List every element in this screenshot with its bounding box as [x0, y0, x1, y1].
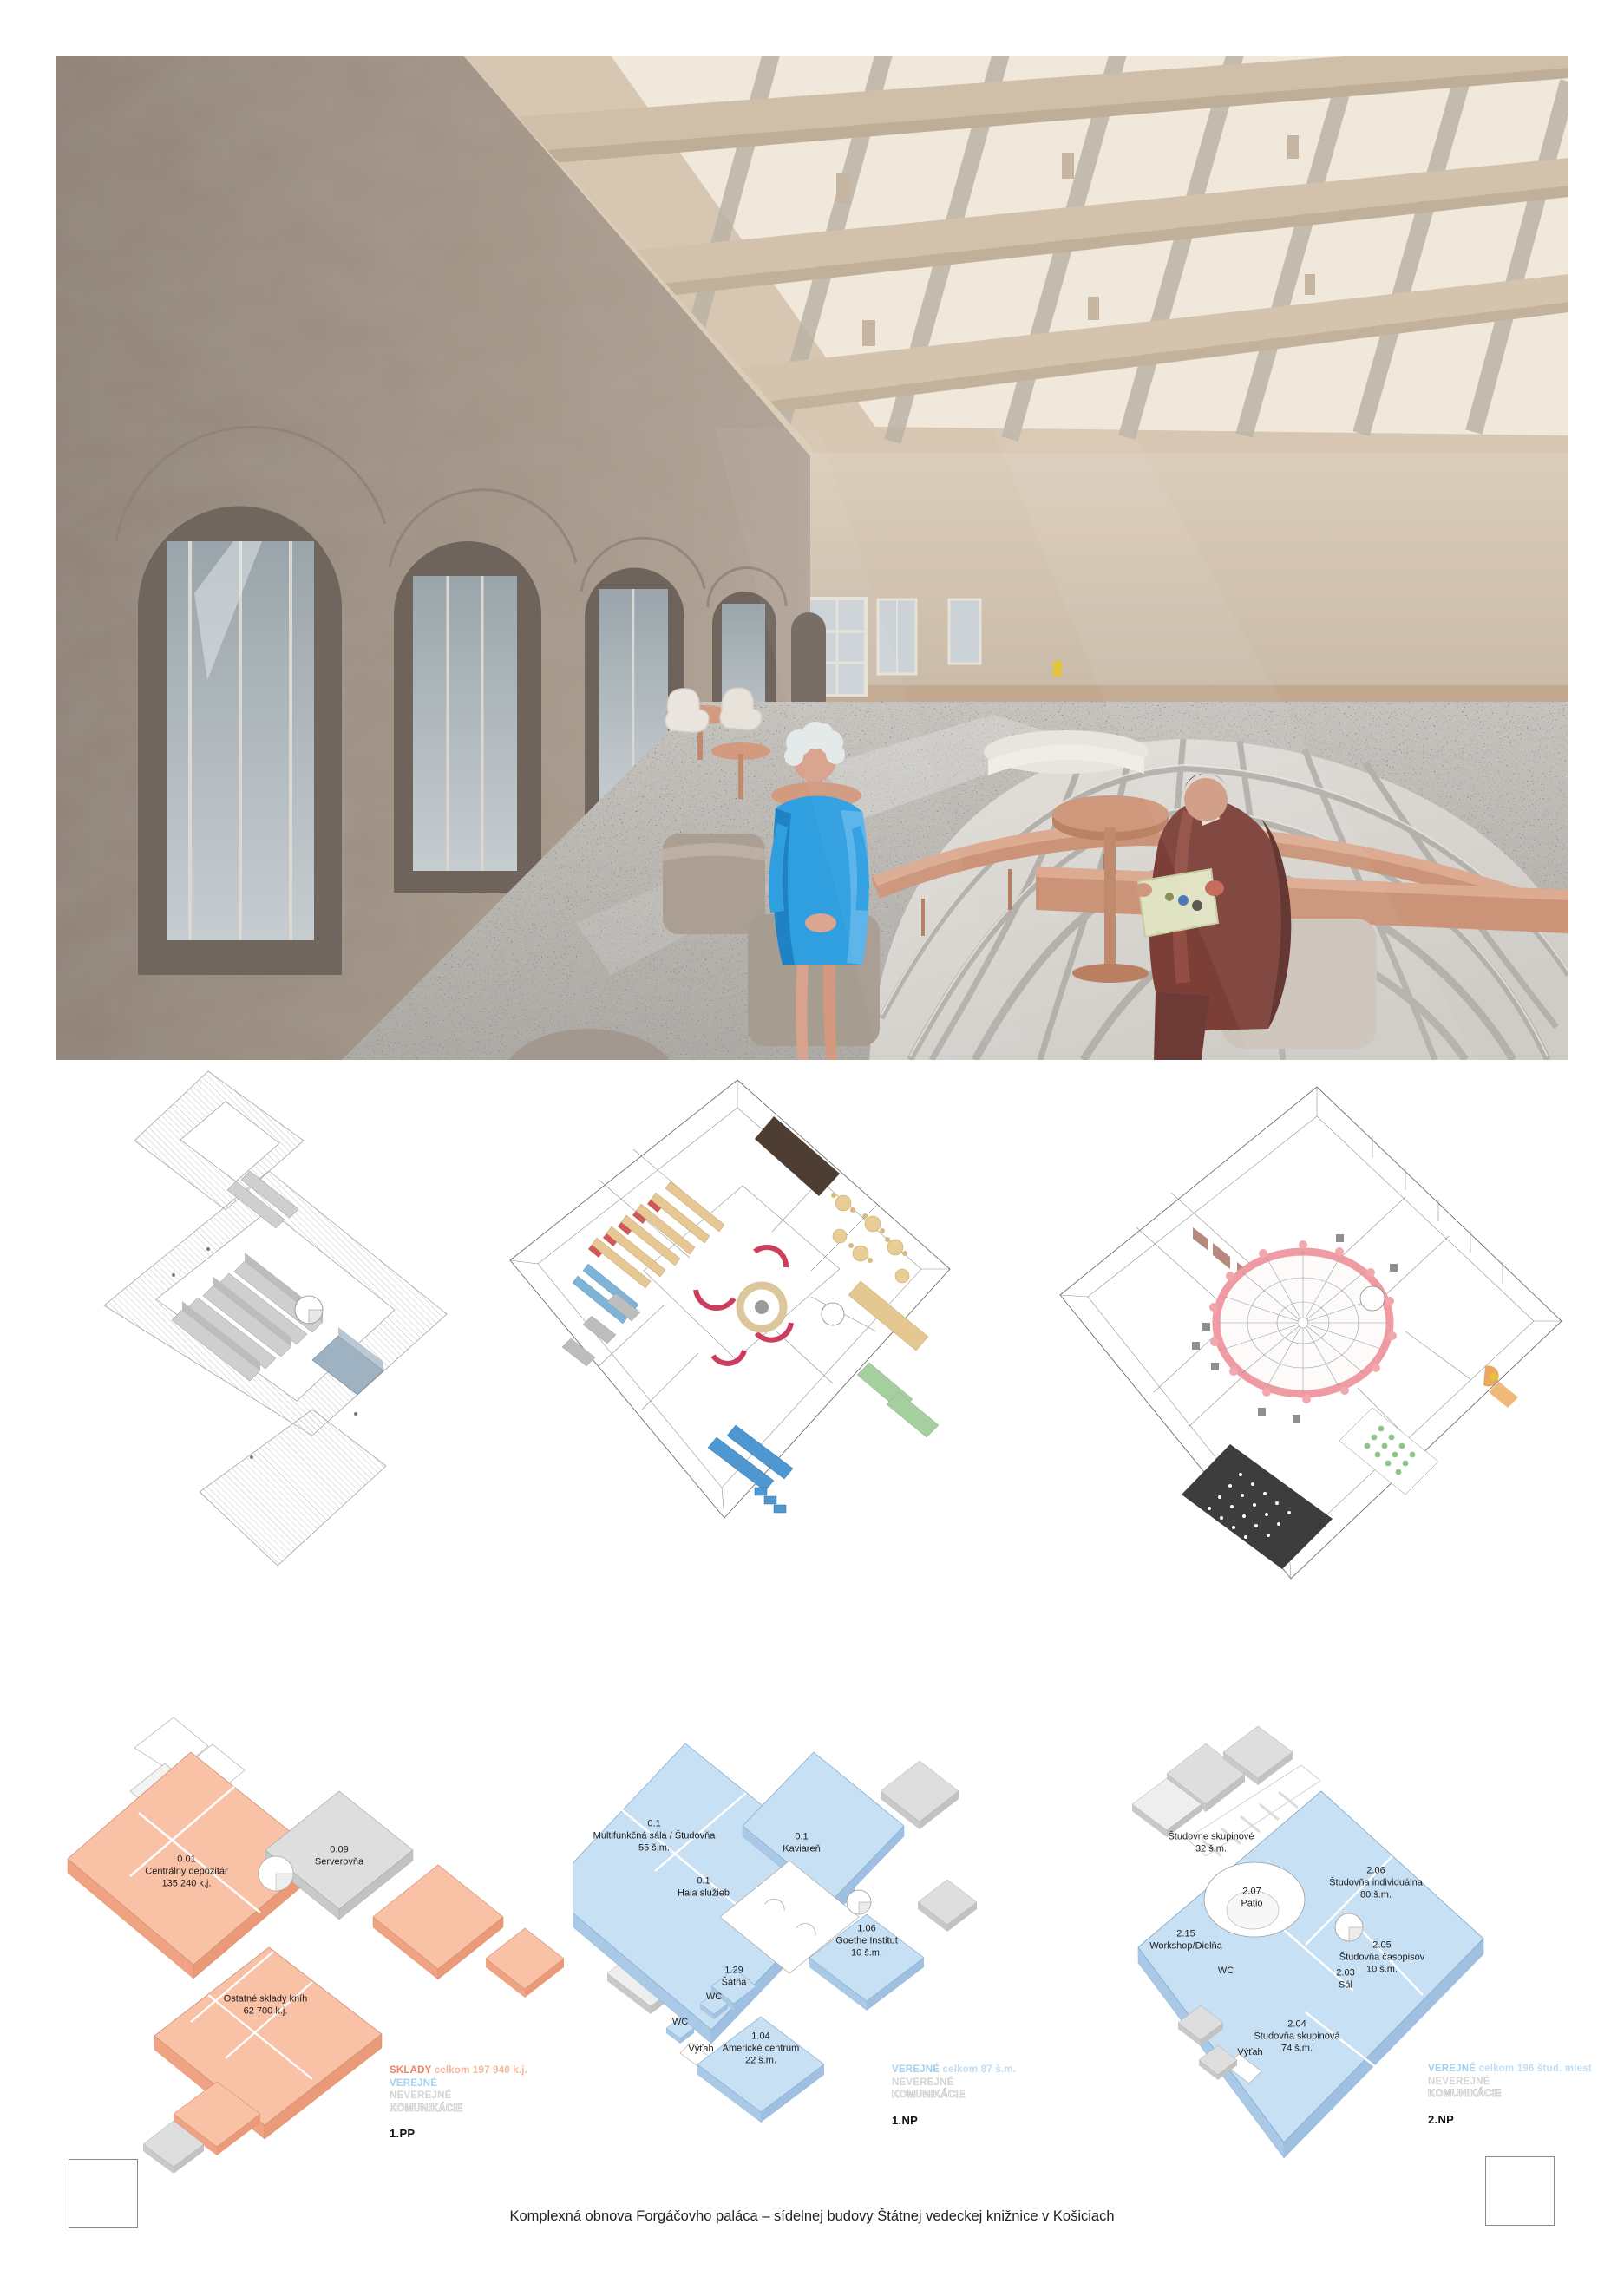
red-lounge-sofas: [696, 1247, 791, 1364]
room-label: 2.04 Študovňa skupinová 74 š.m.: [1254, 2018, 1339, 2054]
axonometric-second-floor-drawing: [998, 1037, 1605, 1605]
room-code: 0.1: [783, 1831, 820, 1843]
legend-1pp: SKLADY celkom 197 940 k.j. VEREJNÉ NEVER…: [390, 2065, 527, 2141]
floor-label-2np: 2.NP: [1428, 2113, 1592, 2126]
library-shelving: [573, 1181, 724, 1324]
room-name: WC: [1218, 1966, 1234, 1978]
room-name: Šatňa: [722, 1977, 747, 1989]
legend-circulation-label: KOMUNIKÁCIE: [1428, 2089, 1592, 2101]
legend-public-label: VEREJNÉ: [390, 2078, 527, 2090]
room-label: 0.1 Kaviareň: [783, 1831, 820, 1855]
room-name: Multifunkčná sála / Študovňa: [593, 1830, 716, 1842]
legend-public-label: VEREJNÉ: [1428, 2064, 1476, 2074]
room-name: Centrálny depozitár: [145, 1866, 227, 1878]
room-area: 10 š.m.: [835, 1947, 898, 1959]
cafe-round-tables: [831, 1193, 928, 1351]
spiral-stair: [822, 1303, 844, 1325]
room-name: Kaviareň: [783, 1843, 820, 1855]
room-area: 62 700 k.j.: [224, 2005, 308, 2018]
room-code: 0.1: [678, 1875, 730, 1887]
gray-desks: [562, 1293, 640, 1366]
brick-arcade: [1193, 1227, 1279, 1307]
room-code: 0.1: [593, 1818, 716, 1830]
room-code: 2.07: [1241, 1886, 1262, 1898]
room-code: 2.04: [1254, 2018, 1339, 2031]
yellow-object: [1053, 661, 1062, 677]
room-label: WC: [1218, 1966, 1234, 1978]
stair-drum: [259, 1856, 293, 1891]
room-area: 22 š.m.: [723, 2055, 800, 2067]
room-area: 80 š.m.: [1329, 1889, 1423, 1901]
room-label: 2.06 Študovňa individuálna 80 š.m.: [1329, 1865, 1423, 1900]
room-code: 2.06: [1329, 1865, 1423, 1877]
room-name: Študovňa individuálna: [1329, 1877, 1423, 1889]
room-code: 0.01: [145, 1854, 227, 1866]
hand: [1135, 883, 1152, 897]
room-name: Výťah: [1237, 2047, 1262, 2059]
room-label: Študovne skupinové 32 š.m.: [1168, 1831, 1254, 1855]
room-name: Študovňa časopisov: [1339, 1952, 1424, 1964]
presentation-board: 0.01 Centrálny depozitár 135 240 k.j. 0.…: [0, 0, 1624, 2296]
wall-lines: [510, 1080, 950, 1518]
pink-poufs: [1209, 1240, 1397, 1403]
gray-back-masses: [1132, 1726, 1293, 1837]
hands: [805, 913, 836, 932]
room-area: 32 š.m.: [1168, 1843, 1254, 1855]
legend-circulation-label: KOMUNIKÁCIE: [390, 2103, 527, 2116]
book-storage-shelves: [172, 1171, 323, 1381]
room-name: Výťah: [688, 2044, 713, 2056]
axonometric-ground-floor-drawing: [468, 1037, 989, 1574]
green-tables: [857, 1363, 939, 1437]
room-label: 2.03 Sál: [1336, 1967, 1354, 1992]
room-code: 2.15: [1149, 1928, 1222, 1940]
room-label: Výťah: [688, 2044, 713, 2056]
legend-nonpublic-label: NEVEREJNÉ: [390, 2090, 527, 2103]
interior-rendering-art: [56, 56, 1568, 1060]
server-racks: [312, 1327, 383, 1395]
room-area: 135 240 k.j.: [145, 1878, 227, 1890]
room-code: 1.04: [723, 2031, 800, 2043]
room-name: WC: [672, 2017, 688, 2029]
legend-nonpublic-label: NEVEREJNÉ: [892, 2077, 1016, 2090]
legend-1np: VEREJNÉ celkom 87 š.m. NEVEREJNÉ KOMUNIK…: [892, 2064, 1016, 2127]
legend-nonpublic-label: NEVEREJNÉ: [1428, 2077, 1592, 2089]
legend-public-total: celkom 196 štud. miest: [1479, 2064, 1592, 2074]
room-label: WC: [672, 2017, 688, 2029]
columns: [172, 1247, 357, 1459]
legend-storage-total: celkom 197 940 k.j.: [435, 2065, 527, 2076]
room-label: WC: [706, 1992, 722, 2004]
central-info-desk: [740, 1285, 783, 1329]
room-label: Výťah: [1237, 2047, 1262, 2059]
gray-cubes: [1192, 1234, 1398, 1423]
room-area: 74 š.m.: [1254, 2043, 1339, 2055]
basement-rooms: [156, 1210, 395, 1401]
room-label: 0.1 Hala služieb: [678, 1875, 730, 1900]
room-name: Serverovňa: [315, 1856, 363, 1868]
room-code: 0.09: [315, 1844, 363, 1856]
room-label: 0.09 Serverovňa: [315, 1844, 363, 1868]
room-name: Hala služieb: [678, 1887, 730, 1900]
room-label: 1.04 Americké centrum 22 š.m.: [723, 2031, 800, 2066]
storage-arm-mass: [373, 1865, 564, 1998]
room-name: Ostatné sklady kníh: [224, 1993, 308, 2005]
legend-storage-label: SKLADY: [390, 2065, 431, 2076]
room-code: 1.29: [722, 1965, 747, 1977]
blue-stacks: [708, 1425, 793, 1513]
room-name: Študovňa skupinová: [1254, 2031, 1339, 2043]
room-name: Americké centrum: [723, 2043, 800, 2055]
room-code: 2.03: [1336, 1967, 1354, 1979]
floor-label-1pp: 1.PP: [390, 2127, 527, 2140]
room-name: Workshop/Dielňa: [1149, 1940, 1222, 1953]
room-name: Goethe Institut: [835, 1935, 898, 1947]
interior-rendering: [56, 56, 1568, 1060]
room-label: 0.1 Multifunkčná sála / Študovňa 55 š.m.: [593, 1818, 716, 1854]
room-label: 1.06 Goethe Institut 10 š.m.: [835, 1923, 898, 1959]
orange-corner-room: [1483, 1365, 1518, 1408]
plan-1pp-drawing: [52, 1687, 625, 2173]
room-name: Sál: [1336, 1979, 1354, 1992]
room-name: Študovne skupinové: [1168, 1831, 1254, 1843]
legend-public-label: VEREJNÉ: [892, 2064, 940, 2075]
room-name: WC: [706, 1992, 722, 2004]
spiral-stair: [295, 1296, 323, 1324]
dark-wood-wall: [755, 1116, 840, 1196]
green-reading-room: [1339, 1408, 1438, 1495]
legend-circulation-label: KOMUNIKÁCIE: [892, 2090, 1016, 2102]
room-label: 0.01 Centrálny depozitár 135 240 k.j.: [145, 1854, 227, 1889]
room-area: 55 š.m.: [593, 1842, 716, 1854]
room-label: 2.15 Workshop/Dielňa: [1149, 1928, 1222, 1953]
room-label: Ostatné sklady kníh 62 700 k.j.: [224, 1993, 308, 2018]
glazed-dome-ring: [1192, 1234, 1398, 1423]
spiral-stair: [1360, 1286, 1385, 1311]
legend-2np: VEREJNÉ celkom 196 štud. miest NEVEREJNÉ…: [1428, 2064, 1592, 2126]
room-label: 1.29 Šatňa: [722, 1965, 747, 1989]
floor-label-1np: 1.NP: [892, 2114, 1016, 2127]
dark-auditorium: [1182, 1418, 1356, 1569]
axonometric-basement-drawing: [52, 1050, 468, 1579]
legend-public-total: celkom 87 š.m.: [943, 2064, 1017, 2075]
room-name: Patio: [1241, 1898, 1262, 1910]
board-caption: Komplexná obnova Forgáčovho paláca – síd…: [0, 2208, 1624, 2225]
trousers: [1154, 992, 1209, 1060]
room-label: 2.07 Patio: [1241, 1886, 1262, 1910]
wall-lines: [1060, 1087, 1562, 1579]
room-code: 1.06: [835, 1923, 898, 1935]
room-code: 2.05: [1339, 1939, 1424, 1952]
